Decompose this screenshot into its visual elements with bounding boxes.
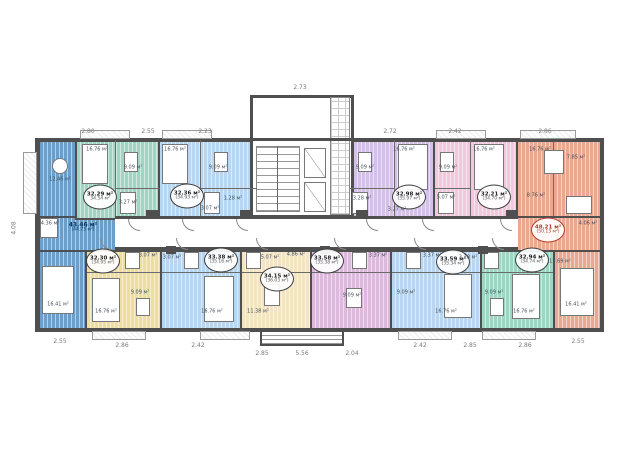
- unit-area-badge-bottom-2: 33.38 м² (35.16 м²): [204, 248, 238, 273]
- room-area-label: 12.46 м²: [49, 178, 71, 183]
- room-area-label: 9.09 м²: [439, 166, 458, 171]
- bathroom: [125, 252, 140, 269]
- unit-area-badge-left-end: 43.46 м² (44.73 м²): [67, 217, 99, 240]
- dimension-label: 2.42: [191, 342, 204, 349]
- unit-area-badge-top-4: 32.21 м² (34.70 м²): [477, 185, 511, 210]
- partition: [435, 188, 470, 189]
- bathroom: [246, 252, 261, 269]
- partition: [470, 140, 471, 216]
- table: [490, 298, 504, 316]
- balcony: [92, 331, 146, 340]
- dimension-label: 4.08: [11, 221, 18, 234]
- room-area-label: 16.76 м²: [164, 148, 186, 153]
- partition: [350, 188, 394, 189]
- bathroom: [484, 252, 499, 269]
- dimension-label: 5.56: [295, 350, 308, 357]
- room-area-label: 16.41 м²: [565, 303, 587, 308]
- unit-area-total: (35.16 м²): [209, 261, 232, 266]
- unit-area-total: (34.74 м²): [520, 261, 543, 266]
- balcony: [482, 331, 536, 340]
- room-area-label: 4.86 м²: [287, 253, 306, 258]
- room-area-label: 3.27 м²: [119, 201, 138, 206]
- bed: [92, 278, 120, 322]
- bed: [204, 276, 234, 322]
- room-area-label: 3.07 м²: [139, 254, 158, 259]
- room-area-label: 1.28 м²: [224, 197, 243, 202]
- dimension-label: 2.86: [518, 342, 531, 349]
- dimension-label: 2.55: [53, 338, 66, 345]
- room-area-label: 5.07 м²: [437, 196, 456, 201]
- unit-area-badge-bottom-4: 33.58 м² (35.38 м²): [310, 249, 344, 274]
- room-area-label: 9.09 м²: [209, 166, 228, 171]
- room-area-label: 16.76 м²: [513, 310, 535, 315]
- unit-area-total: (35.97 м²): [397, 198, 420, 203]
- floor-plan: 43.46 м² (44.73 м²) 32.29 м² 34.54 м² 32…: [0, 0, 644, 470]
- dimension-label: 2.55: [571, 338, 584, 345]
- partition: [115, 140, 116, 216]
- room-area-label: 9.09 м²: [131, 291, 150, 296]
- partition: [162, 272, 240, 273]
- bed: [560, 268, 594, 316]
- partition: [115, 188, 160, 189]
- room-area-label: 3.27 м²: [388, 208, 407, 213]
- corridor: [115, 216, 518, 250]
- ventilation-shaft: [478, 246, 488, 254]
- room-area-label: 3.07 м²: [201, 207, 220, 212]
- room-area-label: 9.09 м²: [124, 166, 143, 171]
- dimension-label: 2.42: [413, 342, 426, 349]
- room-area-label: 9.09 м²: [485, 291, 504, 296]
- room-area-label: 8.76 м²: [527, 194, 546, 199]
- room-area-label: 9.09 м²: [397, 291, 416, 296]
- partition: [392, 272, 480, 273]
- unit-area-badge-bottom-1: 32.30 м² (34.95 м²): [86, 249, 120, 274]
- room-area-label: 9.09 м²: [356, 166, 375, 171]
- room-area-label: 5.07 м²: [261, 256, 280, 261]
- dimension-label: 2.04: [345, 350, 358, 357]
- room-area-label: 4.36 м²: [41, 222, 60, 227]
- ventilation-shaft: [146, 210, 158, 218]
- unit-area-badge-bottom-6: 32.94 м² (34.74 м²): [515, 248, 549, 273]
- dimension-label: 2.86: [538, 128, 551, 135]
- room-area-label: 7.85 м²: [567, 156, 586, 161]
- bathroom: [406, 252, 421, 269]
- dimension-label: 2.23: [198, 128, 211, 135]
- unit-area-total: 34.54 м²: [90, 198, 110, 203]
- ventilation-shaft: [240, 210, 252, 218]
- partition: [482, 272, 553, 273]
- room-area-label: 16.76 м²: [201, 310, 223, 315]
- elevator: [304, 148, 326, 178]
- unit-area-total: (44.73 м²): [71, 229, 94, 234]
- room-area-label: 3.37 м²: [369, 254, 388, 259]
- unit-area-badge-top-1: 32.29 м² 34.54 м²: [83, 185, 117, 210]
- dimension-label: 2.85: [463, 342, 476, 349]
- unit-area-total: (35.34 м²): [441, 263, 464, 268]
- room-area-label: 3.07 м²: [163, 256, 182, 261]
- unit-area-total: (34.93 м²): [175, 197, 198, 202]
- unit-area-total: (34.70 м²): [482, 198, 505, 203]
- room-area-label: 16.41 м²: [47, 303, 69, 308]
- dimension-label: 2.86: [115, 342, 128, 349]
- room-area-label: 16.76 м²: [529, 148, 551, 153]
- room-area-label: 16.76 м²: [393, 148, 415, 153]
- balcony: [398, 331, 452, 340]
- room-area-label: 4.06 м²: [579, 222, 598, 227]
- dimension-label: 2.42: [448, 128, 461, 135]
- entrance-steps: [260, 330, 344, 346]
- balcony: [23, 152, 37, 214]
- dimension-label: 2.73: [293, 84, 306, 91]
- table: [544, 150, 564, 174]
- ventilation-shaft: [356, 210, 368, 218]
- unit-area-total: (50.13 м²): [536, 231, 559, 236]
- partition: [200, 188, 257, 189]
- table: [52, 158, 68, 174]
- bathroom: [352, 252, 367, 269]
- ventilation-shaft: [166, 246, 176, 254]
- room-area-label: 3.28 м²: [353, 197, 372, 202]
- bathroom: [566, 196, 592, 214]
- dimension-label: 2.85: [255, 350, 268, 357]
- room-area-label: 9.09 м²: [343, 294, 362, 299]
- room-area-label: 16.76 м²: [473, 148, 495, 153]
- ventilation-shaft: [506, 210, 518, 218]
- room-area-label: 12.69 м²: [549, 260, 571, 265]
- unit-area-total: (34.95 м²): [91, 262, 114, 267]
- room-area-label: 3.37 м²: [423, 254, 442, 259]
- bathroom: [184, 252, 199, 269]
- dimension-label: 2.80: [81, 128, 94, 135]
- stairs: [256, 146, 300, 212]
- dimension-label: 2.72: [383, 128, 396, 135]
- room-area-label: 16.76 м²: [435, 310, 457, 315]
- balcony: [200, 331, 250, 340]
- unit-area-total: (35.38 м²): [315, 262, 338, 267]
- dimension-label: 2.55: [141, 128, 154, 135]
- unit-area-total: (36.03 м²): [265, 280, 288, 285]
- room-area-label: 16.76 м²: [86, 148, 108, 153]
- elevator: [304, 182, 326, 212]
- shaft-grid: [330, 97, 350, 215]
- unit-area-badge-bottom-3: 34.15 м² (36.03 м²): [260, 267, 294, 292]
- table: [136, 298, 150, 316]
- stair-divider: [277, 146, 278, 212]
- room-area-label: 11.38 м²: [247, 310, 269, 315]
- unit-area-badge-top-2: 32.36 м² (34.93 м²): [170, 184, 204, 209]
- unit-area-badge-right-end: 48.21 м² (50.13 м²): [531, 218, 565, 243]
- room-area-label: 16.76 м²: [95, 310, 117, 315]
- room-area-label: 3.28 м²: [459, 256, 478, 261]
